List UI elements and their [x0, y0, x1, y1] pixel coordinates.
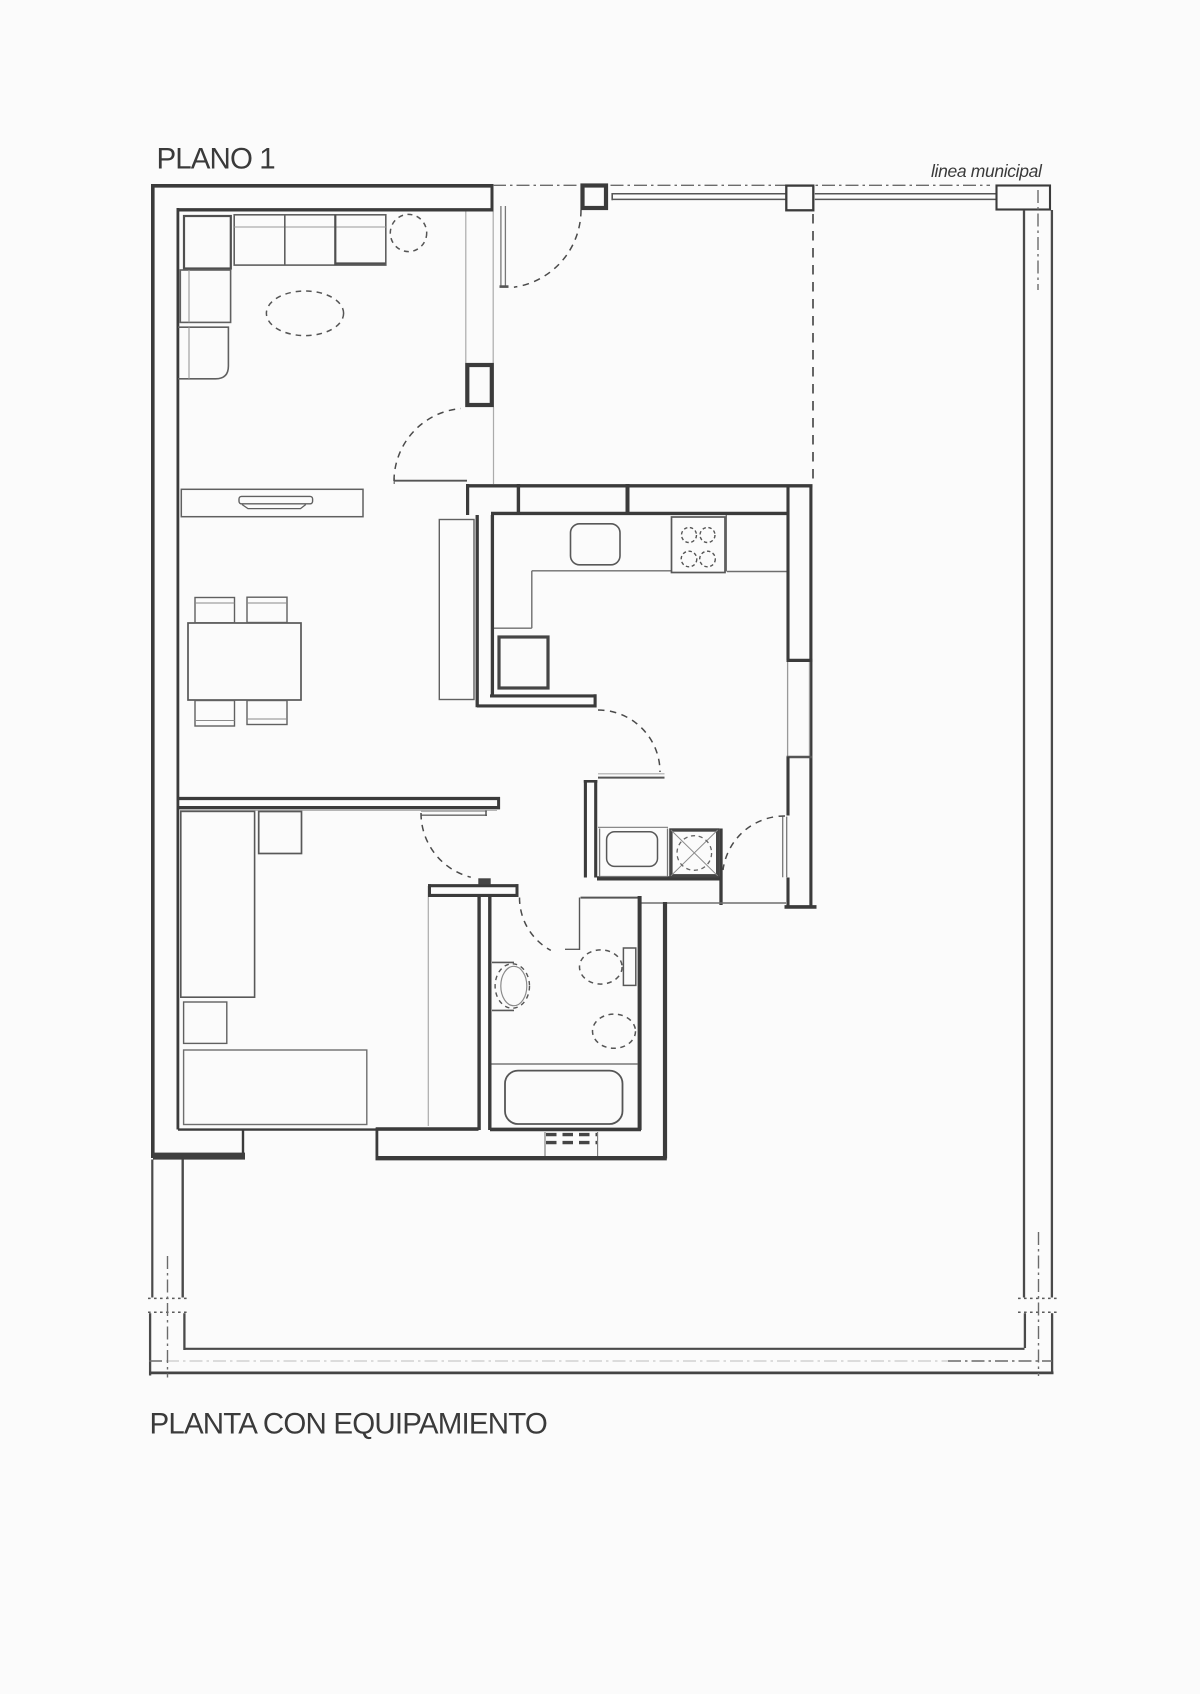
svg-text:PLANTA CON EQUIPAMIENTO: PLANTA CON EQUIPAMIENTO [150, 1408, 548, 1441]
svg-text:PLANO 1: PLANO 1 [157, 143, 275, 176]
svg-text:linea municipal: linea municipal [931, 161, 1043, 181]
